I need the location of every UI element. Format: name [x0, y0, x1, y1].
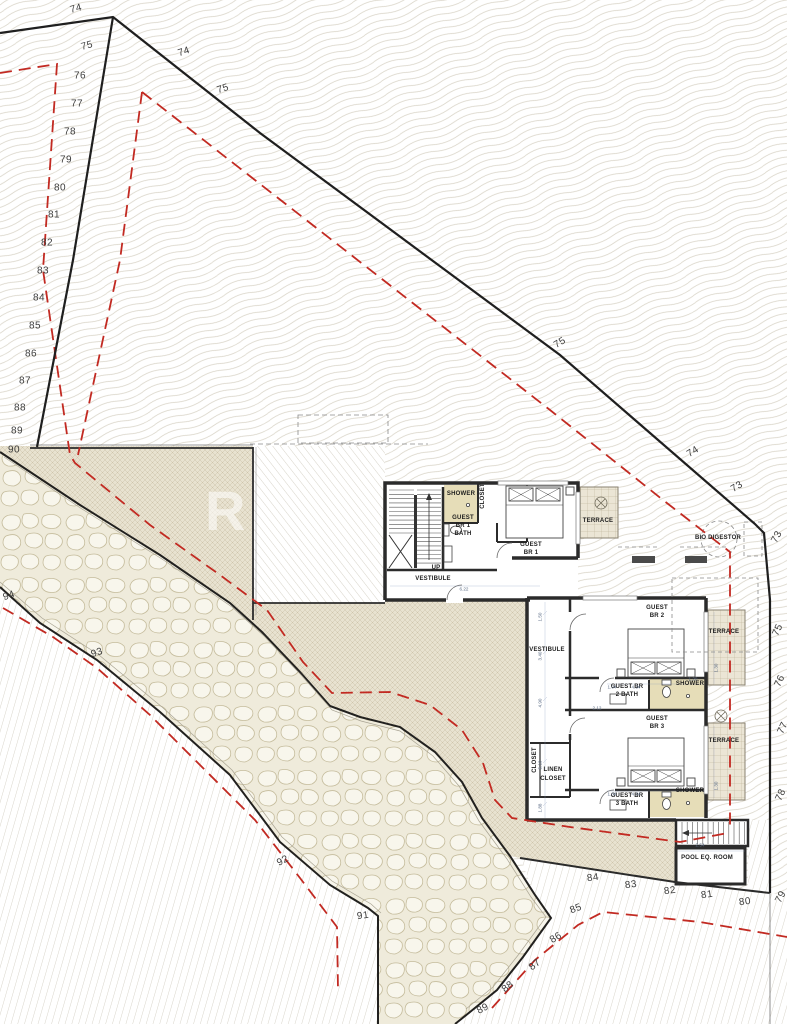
plan-drawing [0, 0, 787, 1024]
shower-br1 [444, 485, 478, 523]
toilet-tank-icon [444, 524, 449, 536]
site-plan: 7475767778798081828384858687888990747575… [0, 0, 787, 1024]
shower-br2 [649, 679, 705, 710]
bed-br3 [617, 738, 695, 786]
toilet-icon [451, 526, 462, 534]
bed-br2 [617, 629, 695, 677]
vanity-icon [444, 546, 452, 562]
shower-br3 [649, 791, 705, 817]
